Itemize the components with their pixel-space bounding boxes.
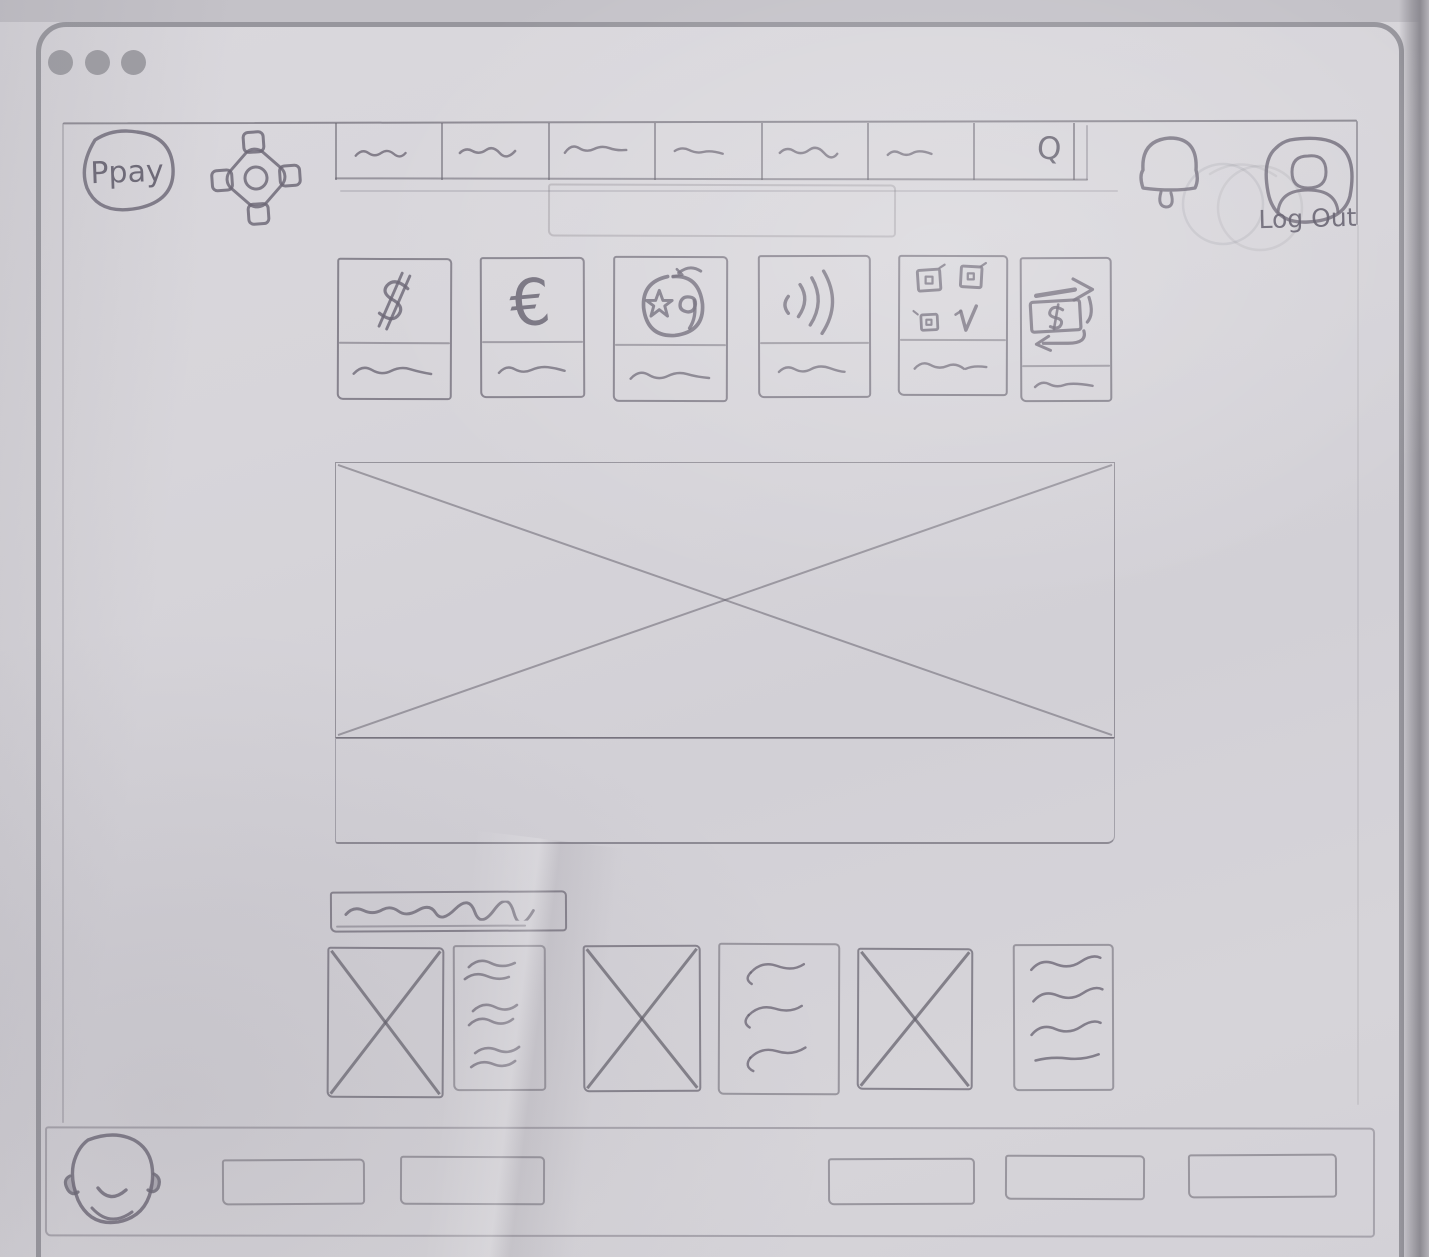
gear-icon[interactable] (205, 125, 308, 231)
image-placeholder-cross (859, 950, 972, 1088)
feature-tile-qr[interactable] (898, 255, 1008, 396)
app-logo[interactable]: Ppay (75, 126, 179, 222)
footer-link-slot[interactable] (828, 1158, 975, 1206)
logout-link[interactable]: Log Out (1250, 202, 1366, 234)
money-transfer-icon (1024, 265, 1112, 359)
traffic-light-dot[interactable] (121, 50, 146, 75)
tile-label-divider (900, 339, 1006, 341)
hero-image-placeholder[interactable] (335, 462, 1115, 738)
smiley-face-icon[interactable] (58, 1128, 170, 1236)
search-box[interactable]: Q (973, 123, 1075, 180)
text-placeholder-squiggle (777, 143, 841, 159)
article-image-placeholder (857, 948, 974, 1091)
footer-link-slot[interactable] (1188, 1154, 1337, 1199)
traffic-light-dot[interactable] (85, 50, 110, 75)
feature-tile-transfer[interactable] (1020, 257, 1113, 402)
tile-label-divider (339, 342, 450, 344)
text-placeholder-squiggle (1032, 377, 1098, 393)
feature-tile-star-currency[interactable] (613, 256, 728, 402)
footer-link-slot[interactable] (1005, 1155, 1145, 1201)
text-placeholder-squiggle (353, 145, 411, 161)
feature-tile-dollar[interactable] (337, 258, 452, 400)
nav-tab[interactable] (335, 123, 441, 180)
paper-photo: Ppay Q (0, 0, 1429, 1257)
feature-tile-euro[interactable]: € (480, 257, 585, 398)
nav-tab[interactable] (761, 123, 867, 180)
text-placeholder-squiggle (726, 949, 832, 1091)
text-placeholder-squiggle (672, 143, 730, 159)
text-placeholder-squiggle (1020, 950, 1112, 1088)
page-right-line (1357, 225, 1359, 1105)
text-placeholder-squiggle (351, 362, 437, 380)
dollar-sign-icon (367, 266, 423, 338)
feature-tile-contactless[interactable] (758, 255, 871, 398)
article-image-placeholder (327, 947, 445, 1099)
text-placeholder-squiggle (627, 366, 713, 384)
text-placeholder-squiggle (457, 143, 519, 159)
nav-tab[interactable] (867, 123, 974, 180)
tile-label-divider (1022, 365, 1110, 367)
paper-edge-shadow (1399, 0, 1429, 1257)
nav-tab[interactable] (441, 123, 548, 180)
text-placeholder-squiggle (562, 141, 630, 157)
tile-label-divider (482, 341, 583, 343)
search-magnifier-glyph: Q (1035, 130, 1062, 168)
article-text-placeholder (1013, 944, 1115, 1091)
dropdown-panel (548, 184, 896, 238)
photo-top-band (0, 0, 1429, 22)
text-placeholder-squiggle (496, 361, 570, 379)
traffic-light-dot[interactable] (48, 50, 73, 75)
logo-text: Ppay (73, 124, 180, 220)
footer-link-slot[interactable] (222, 1159, 365, 1206)
page-left-line (62, 123, 64, 1123)
nav-tab[interactable] (548, 123, 654, 180)
image-placeholder-cross (336, 463, 1114, 737)
article-text-placeholder (718, 943, 841, 1095)
text-placeholder-squiggle (885, 145, 937, 161)
euro-sign-icon: € (507, 265, 554, 342)
tile-label-divider (760, 342, 869, 344)
search-box-double-line (1086, 125, 1088, 180)
article-card[interactable] (583, 943, 841, 1099)
star-currency-coin-icon (627, 260, 719, 352)
image-placeholder-cross (329, 949, 443, 1097)
tile-label-divider (615, 344, 726, 346)
nav-tab[interactable] (654, 123, 761, 180)
hero-caption-band (335, 737, 1115, 844)
article-card[interactable] (857, 944, 1115, 1094)
qr-code-icon (908, 263, 1004, 349)
text-placeholder-squiggle (776, 361, 850, 379)
contactless-waves-icon (770, 261, 864, 341)
text-placeholder-squiggle (912, 357, 992, 375)
